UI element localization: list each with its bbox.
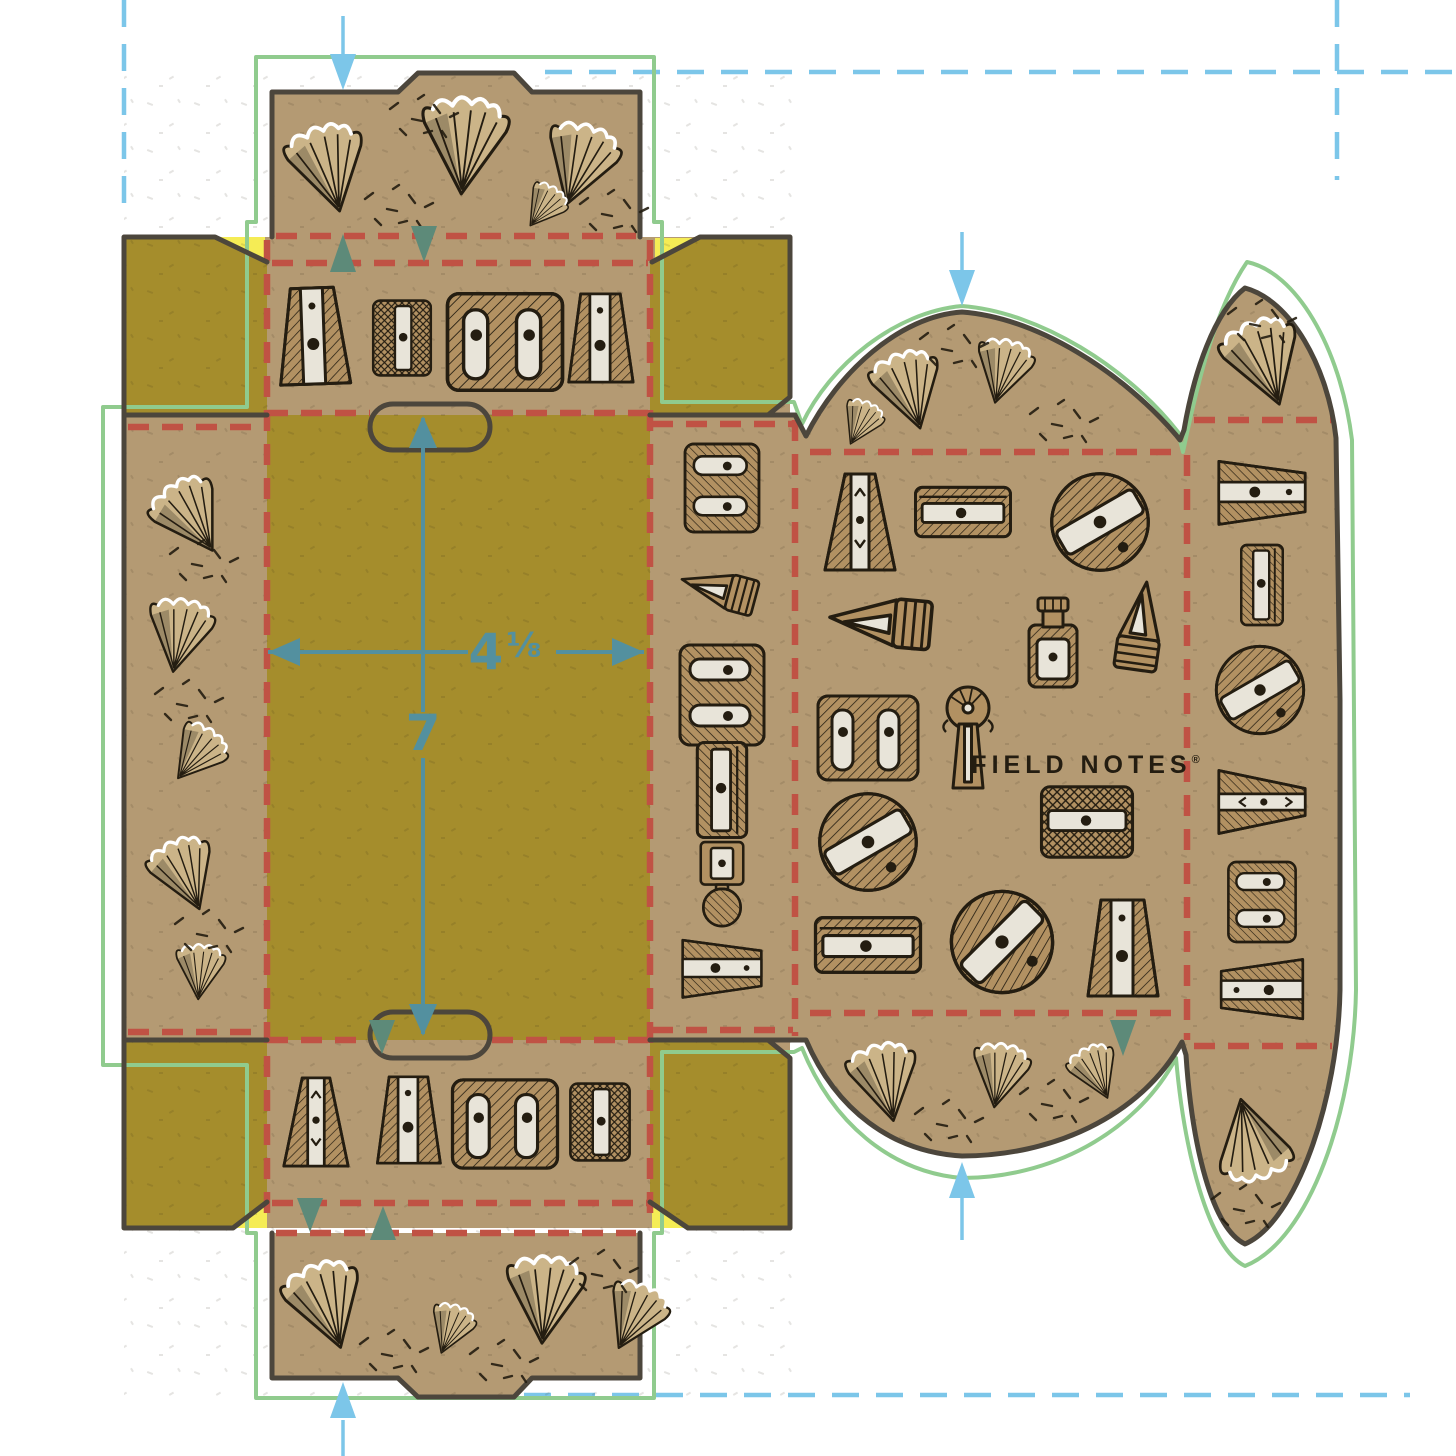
dieline-canvas: FIELD NOTES® 4⅛ 7 xyxy=(0,0,1456,1456)
brand-logo-text: FIELD NOTES xyxy=(971,751,1191,779)
brand-registered-mark: ® xyxy=(1192,754,1205,766)
dimension-height-label: 7 xyxy=(406,704,441,762)
brand-logo: FIELD NOTES® xyxy=(971,751,1204,779)
artboard: FIELD NOTES® 4⅛ 7 xyxy=(0,0,1456,1456)
illustration-front-top-sharpeners xyxy=(277,287,633,391)
